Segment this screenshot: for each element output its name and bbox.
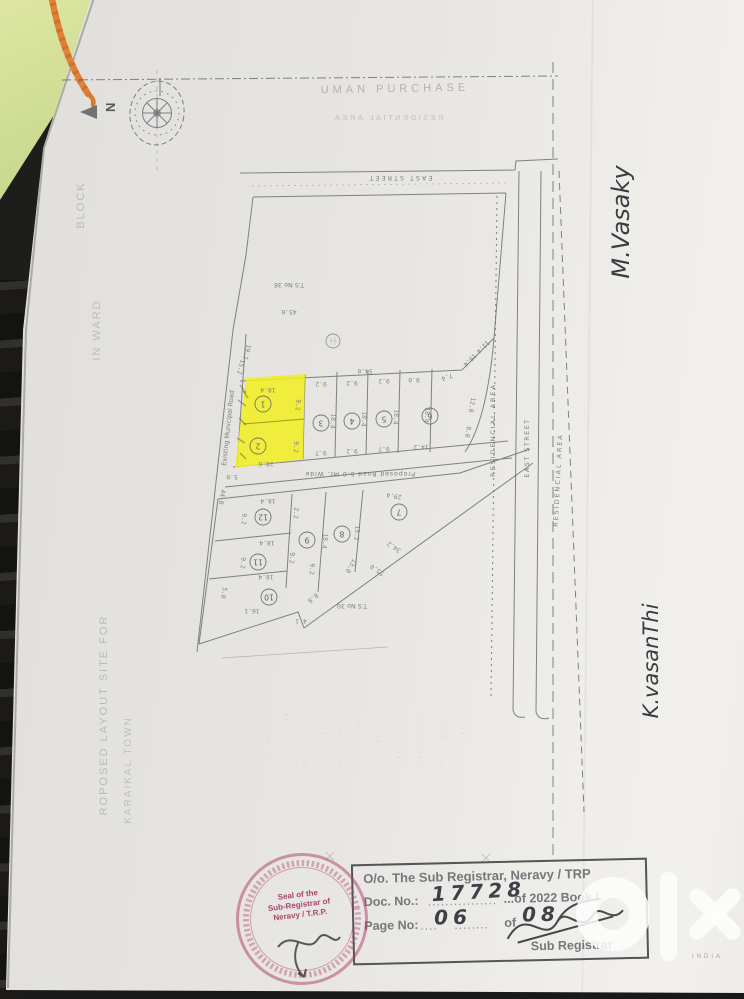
mirrored-bleed-text: RESIDENTIAL AREA — [333, 113, 444, 122]
dimension-label: 15.2 — [235, 359, 246, 376]
paper-edge — [8, 0, 94, 988]
svg-text:::· · ·: ·: ::· · ·: · — [396, 711, 402, 760]
svg-text:· ::· · ·:: · ::· · ·: — [266, 706, 272, 755]
plot-number: 7 — [396, 507, 401, 516]
svg-text:·: ·· :·: ·: ·· :· — [248, 716, 254, 755]
dimension-label: 9.7 — [315, 449, 327, 456]
dimension-label: 15.2 — [352, 525, 360, 541]
bleed-through-table: ·: ·· :· · ::· · ·: ·· : ·: ··: ::· ·· ·… — [248, 706, 466, 773]
compass-rose: N — [80, 70, 188, 172]
residential-label-1: RESIDENCIAL AREA — [489, 383, 497, 477]
olx-watermark: INDIA — [570, 866, 744, 970]
page-no-label: Page No: — [364, 918, 418, 933]
dimension-label: 4.1 — [295, 617, 307, 624]
top-street-band: EAST STREET — [240, 159, 558, 186]
dimension-label: 19.4 — [462, 352, 478, 368]
dimension-label: 2.2 — [292, 507, 300, 519]
top-street-label: EAST STREET — [368, 174, 433, 182]
east-street-label: EAST STREET — [523, 418, 531, 477]
dimension-label: 5.0 — [219, 587, 228, 600]
faint-title: UMAN PURCHASE — [321, 82, 470, 97]
svg-text:·· : ·: ··:: ·· : ·: ··: — [284, 711, 290, 765]
olx-o-glyph — [576, 877, 650, 951]
dimension-label: 8.0 — [463, 426, 472, 439]
dimension-label: 18.4 — [422, 407, 430, 423]
north-label: N — [103, 103, 118, 112]
margin-proposed-label: ROPOSED LAYOUT SITE FOR — [98, 615, 110, 816]
dimension-label: 11.4 — [475, 339, 491, 355]
olx-l-glyph — [660, 872, 677, 961]
dimension-label: 9.2 — [239, 557, 247, 569]
dimension-label: 9.2 — [315, 380, 327, 387]
plot-number: 3 — [318, 418, 323, 427]
svg-text:· :: ·:· ·: · :: ·:· · — [460, 716, 466, 765]
svg-text:· ·:· :: ··: · ·:· :: ·· — [418, 715, 424, 769]
margin-block-label: BLOCK — [75, 181, 87, 228]
svg-text:·:· · ·: ::: ·:· · ·: :: — [338, 713, 344, 767]
dimension-label: 18.4 — [260, 386, 275, 393]
dimension-label: 9.2 — [292, 441, 300, 453]
doc-no-label: Doc. No.: — [364, 894, 419, 909]
page-leader-b: ........ — [454, 917, 489, 932]
dimension-label: 18.4 — [259, 539, 274, 546]
plot-number: 5 — [381, 414, 386, 423]
dimension-label: 8.0 — [408, 376, 420, 383]
plot-number: 2 — [255, 441, 260, 450]
dimension-label: 9.2 — [240, 513, 248, 525]
svg-text:· ·: :·· ·: · ·: :·· · — [320, 711, 326, 760]
dimension-label: 28.6 — [258, 460, 273, 467]
signature-m-vasaky: M.Vasaky — [607, 152, 637, 292]
plot-number: 12 — [258, 512, 268, 521]
dimension-label: 18.4 — [359, 411, 367, 427]
dimension-label: 45.0 — [281, 308, 296, 315]
scanned-document-photo: UMAN PURCHASE RESIDENTIAL AREA N EAST ST… — [0, 0, 744, 999]
svg-text:·: · · ::·: ·: · · ::· — [440, 724, 446, 773]
dimension-label: 9.2 — [294, 399, 302, 411]
signature-k-vasanthi: K.vasanThi — [639, 586, 665, 736]
left-margin-titles: BLOCK IN WARD ROPOSED LAYOUT SITE FOR KA… — [75, 181, 134, 823]
dimension-label: 16.1 — [244, 607, 259, 614]
dimension-label: 34.2 — [386, 539, 403, 554]
residential-label-2: RESIDENCIAL AREA — [552, 433, 565, 527]
survey-lower-label: T.S No 30 — [337, 602, 368, 610]
dimension-label: 9.2 — [288, 552, 296, 564]
seal-signature — [268, 925, 348, 987]
dimension-label: 14.2 — [413, 443, 428, 450]
dimension-label: 18.4 — [328, 413, 336, 429]
dimension-label: 18.4 — [258, 573, 273, 580]
plot-number: 1 — [260, 399, 265, 408]
olx-india-label: INDIA — [692, 954, 723, 960]
margin-ward-label: IN WARD — [91, 299, 103, 360]
dimension-label: 9.2 — [378, 377, 390, 384]
dimension-labels: 45.0 54.0 9.2 9.2 9.2 8.0 18.4 18.4 18.4… — [217, 308, 491, 624]
dimension-label: 18.4 — [320, 533, 328, 549]
plot-number: 10 — [264, 592, 274, 601]
plot-number: 9 — [304, 535, 309, 544]
dimension-label: 7.4 — [440, 371, 453, 382]
plot-number: 8 — [339, 529, 344, 538]
svg-text:·· :: · ·:·: ·· :: · ·:· — [356, 718, 362, 772]
dimension-label: 18.4 — [260, 497, 275, 504]
svg-text:· · ::· ··: · · ::· ·· — [376, 714, 382, 763]
plot-number: 11 — [253, 557, 263, 566]
dimension-label: 44.0 — [217, 489, 227, 505]
site-plan: UMAN PURCHASE RESIDENTIAL AREA N EAST ST… — [0, 0, 744, 999]
dimension-label: 5.0 — [226, 473, 238, 480]
survey-mark — [326, 334, 340, 348]
dimension-label: 8.8 — [306, 591, 319, 604]
plot-number: 4 — [349, 416, 354, 425]
survey-upper-label: T.S No 36 — [274, 281, 305, 289]
dimension-label: 55.0 — [369, 562, 386, 577]
dimension-label: 54.0 — [357, 367, 372, 374]
dimension-label: 9.2 — [346, 379, 358, 386]
compass-center — [153, 109, 161, 117]
margin-town-label: KARAIKAL TOWN — [123, 716, 134, 824]
svg-text:::· ·· · ··: ::· ·· · ·· — [302, 715, 308, 769]
dimension-label: 9.2 — [308, 563, 316, 575]
north-arrow — [80, 105, 97, 119]
dimension-label: 9.7 — [378, 445, 390, 452]
dimension-label: 29.4 — [386, 491, 402, 501]
dimension-label: 9.2 — [346, 447, 358, 454]
dimension-label: 12.0 — [467, 397, 477, 413]
mid-road-label: Proposed Road 5.0 Mt. Wide — [305, 470, 416, 478]
dimension-label: 19.2 — [241, 344, 252, 361]
dimension-label: 18.4 — [391, 409, 399, 425]
